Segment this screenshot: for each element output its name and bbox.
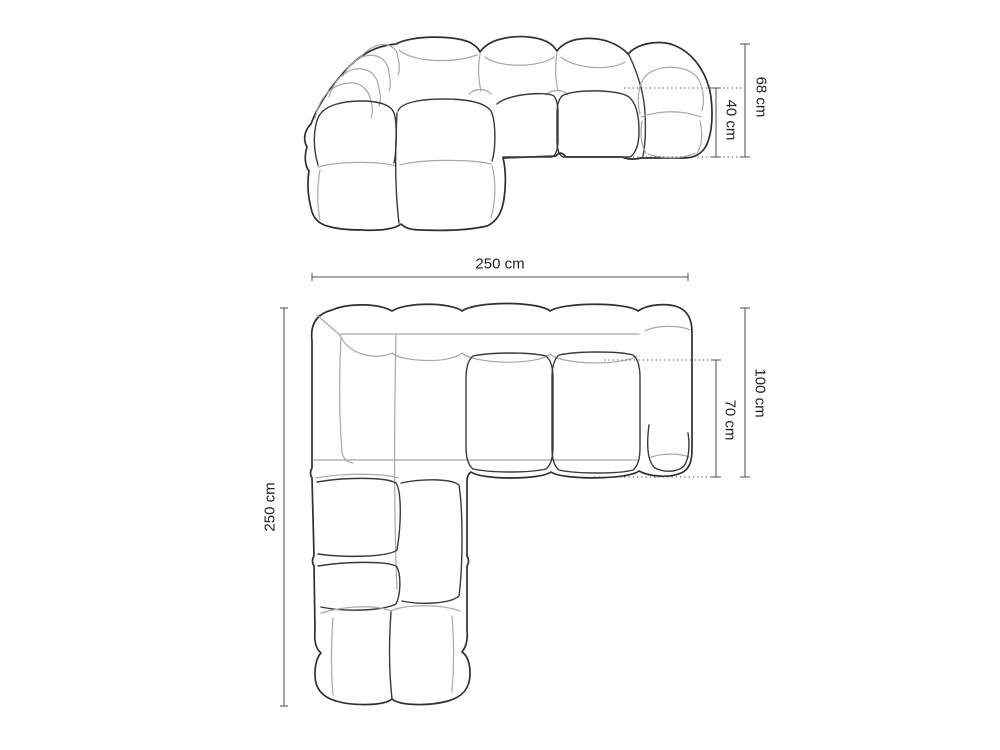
plan-corner-left-inner (340, 337, 353, 463)
front-seat-height-label: 40 cm (723, 100, 740, 141)
front-total-height-dim-line (740, 44, 750, 157)
plan-seat-depth-dim-line (711, 360, 721, 477)
sofa-dimension-drawing: 68 cm 40 cm 250 cm 250 cm (0, 0, 1000, 750)
chaise-front-column-division (396, 113, 399, 223)
chaise-front-row-division (318, 160, 495, 220)
plan-backrest-front-wavy (341, 337, 637, 363)
plan-right-depth-dim-line (740, 308, 750, 477)
plan-outline (311, 304, 693, 705)
plan-seat-cushion-a (466, 353, 553, 472)
plan-seat-depth-label: 70 cm (722, 400, 739, 441)
plan-chaise-bubble-2 (318, 562, 400, 610)
plan-seat-cushion-b (552, 352, 640, 473)
plan-view: 250 cm 250 cm 100 cm 70 cm (262, 256, 769, 707)
plan-depth-dim-line (280, 308, 288, 706)
plan-pouf-side-lines (332, 616, 454, 695)
chaise-front-top-right-bubble (398, 99, 495, 161)
backrest-bottom-arcs (399, 50, 625, 68)
armrest-front-bubbles (638, 67, 703, 157)
plan-chaise-bubble-1 (317, 478, 400, 556)
backrest-pinch-lines (469, 53, 568, 95)
plan-depth-label: 250 cm (262, 482, 279, 531)
front-total-height-label: 68 cm (753, 77, 770, 118)
plan-width-dim-line (312, 273, 688, 281)
front-seat-cushion-left (497, 94, 558, 157)
plan-corner-diagonal (317, 315, 341, 336)
plan-chaise-long-cushion (401, 480, 462, 603)
plan-pouf-center-division (390, 612, 392, 699)
plan-armrest-end-arcs (645, 326, 690, 458)
diagram-canvas: 68 cm 40 cm 250 cm 250 cm (0, 0, 1000, 750)
armrest-front-inner-edge (629, 55, 645, 156)
front-outline (305, 37, 712, 231)
front-view: 68 cm 40 cm (305, 37, 770, 231)
front-seat-cushion-right (557, 91, 639, 157)
plan-armrest-front-cap (648, 425, 689, 471)
plan-right-depth-label: 100 cm (752, 368, 769, 417)
plan-width-label: 250 cm (475, 256, 524, 273)
plan-chaise-segment-line (316, 474, 398, 478)
chaise-front-top-left-bubble (314, 101, 396, 165)
